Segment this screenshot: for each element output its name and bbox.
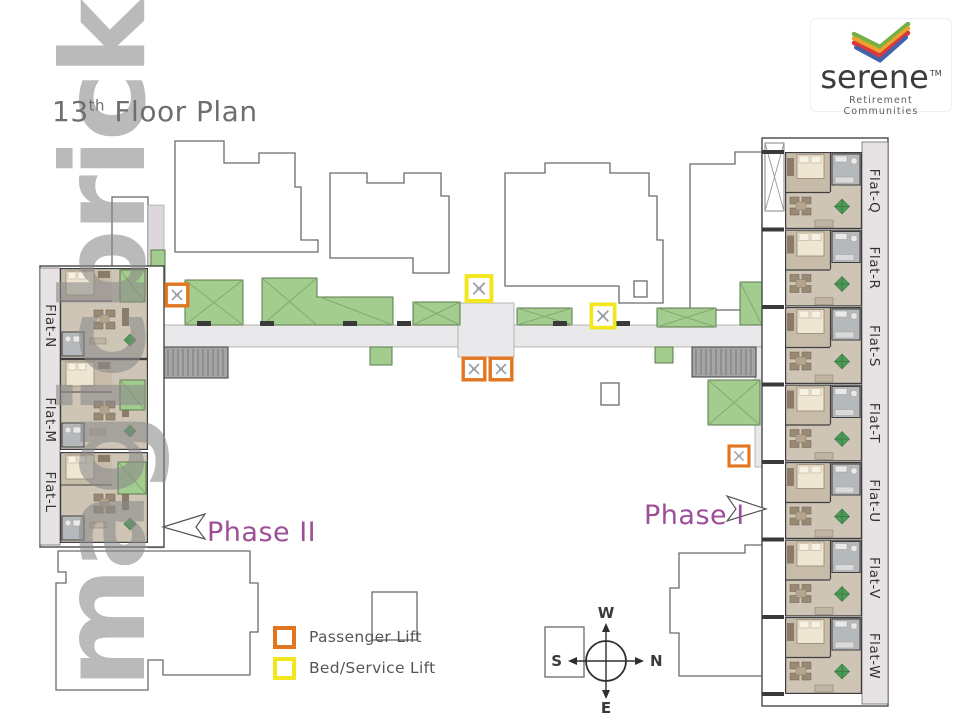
outline-unit bbox=[634, 281, 647, 297]
green-deck bbox=[655, 347, 673, 363]
flat-label: Flat-V bbox=[866, 557, 882, 599]
central-lobby bbox=[458, 303, 514, 357]
page-title: 13th Floor Plan bbox=[52, 95, 258, 128]
compass-right: N bbox=[650, 652, 663, 670]
green-deck bbox=[370, 347, 392, 365]
serene-logo: sereneTM Retirement Communities bbox=[810, 18, 952, 112]
logo-tagline: Retirement Communities bbox=[811, 95, 951, 117]
legend-label: Passenger Lift bbox=[309, 628, 422, 646]
legend: Passenger Lift Bed/Service Lift bbox=[273, 625, 435, 687]
flat-unit bbox=[786, 618, 862, 694]
staircase-left bbox=[164, 347, 228, 378]
legend-label: Bed/Service Lift bbox=[309, 659, 435, 677]
logo-brand: sereneTM bbox=[811, 61, 951, 93]
title-text: Floor Plan bbox=[105, 95, 258, 128]
outline-unit bbox=[112, 197, 148, 267]
trademark-symbol: TM bbox=[930, 69, 942, 78]
flat-label: Flat-L bbox=[42, 471, 58, 512]
flat-label: Flat-U bbox=[866, 479, 882, 522]
flat-label: Flat-T bbox=[866, 403, 882, 444]
bed-service-lift bbox=[591, 304, 614, 327]
staircase-right bbox=[692, 347, 756, 377]
flat-unit bbox=[786, 463, 862, 539]
flat-unit bbox=[786, 153, 862, 229]
phase2-arrow bbox=[163, 514, 205, 539]
flat-label: Flat-N bbox=[42, 304, 58, 348]
flat-label: Flat-R bbox=[866, 247, 882, 290]
outline-unit-bottom-left bbox=[56, 551, 258, 690]
flat-unit bbox=[786, 385, 862, 461]
left-wing: Flat-N Flat-M Flat-L bbox=[40, 266, 164, 547]
passenger-lift bbox=[166, 284, 188, 306]
compass-left: S bbox=[551, 652, 562, 670]
phase1-label: Phase I bbox=[644, 500, 745, 531]
flat-label: Flat-Q bbox=[866, 169, 882, 214]
outline-unit bbox=[330, 173, 449, 273]
flat-unit bbox=[786, 308, 862, 384]
flat-unit bbox=[786, 230, 862, 306]
legend-item-bed-service-lift: Bed/Service Lift bbox=[273, 656, 435, 680]
passenger-lift bbox=[463, 358, 485, 380]
legend-item-passenger-lift: Passenger Lift bbox=[273, 625, 435, 649]
title-ordinal: th bbox=[89, 97, 105, 115]
right-wing: Flat-Q Flat-R Flat-S Flat-T Flat-U Flat-… bbox=[762, 138, 888, 706]
outline-unit bbox=[175, 141, 318, 252]
title-number: 13 bbox=[52, 95, 89, 128]
passenger-lift-icon bbox=[273, 626, 296, 649]
bed-service-lift-icon bbox=[273, 657, 296, 680]
phase-annotations: Phase II Phase I bbox=[163, 496, 766, 548]
outline-unit bbox=[601, 383, 619, 405]
passenger-lift bbox=[490, 358, 512, 380]
passenger-lift bbox=[729, 446, 749, 466]
compass-bottom: E bbox=[601, 699, 611, 717]
flat-label: Flat-M bbox=[42, 397, 58, 442]
floor-plan-page: Flat-N Flat-M Flat-L Flat-Q Flat-R Flat-… bbox=[0, 0, 953, 721]
flat-unit bbox=[786, 540, 862, 616]
flat-label: Flat-S bbox=[866, 325, 882, 367]
flat-label: Flat-W bbox=[866, 633, 882, 679]
bed-service-lift bbox=[467, 276, 492, 301]
corridors bbox=[148, 205, 772, 548]
compass-top: W bbox=[598, 604, 615, 622]
outline-unit-bottom-center bbox=[670, 545, 767, 676]
phase2-label: Phase II bbox=[207, 517, 316, 548]
